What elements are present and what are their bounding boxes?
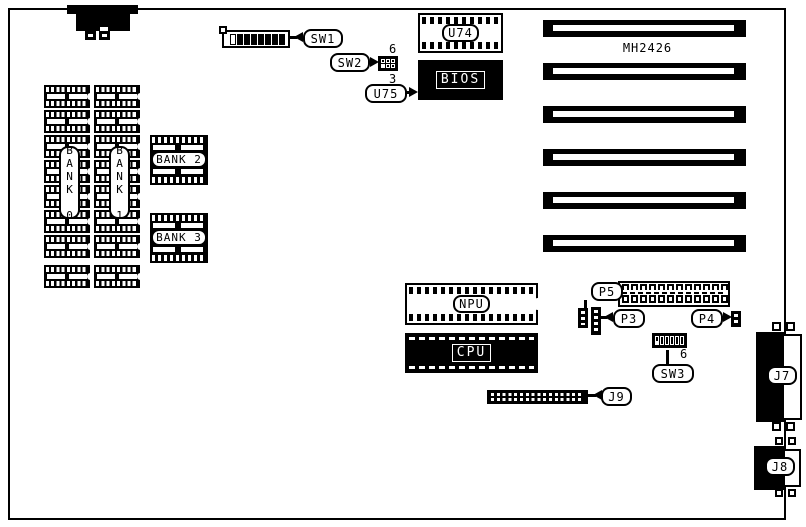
p5-pin <box>622 295 629 303</box>
bank3-label: BANK 3 <box>151 229 207 246</box>
bank2-pin-row <box>152 177 206 183</box>
bios-chip: BIOS <box>418 60 503 100</box>
p5-divider <box>622 292 726 294</box>
bank3-chip-bar <box>181 223 203 228</box>
sw1-label: SW1 <box>303 29 343 48</box>
sw3-switch-cell <box>655 336 659 345</box>
u75-label: U75 <box>365 84 407 103</box>
cpu-pin-row <box>409 366 534 369</box>
sw1-switch-cells <box>230 34 285 45</box>
p5-tab <box>676 284 683 290</box>
sw3-switch-cell <box>680 336 684 345</box>
p5-tab-row <box>622 284 728 290</box>
j7-screw-tab <box>772 422 781 431</box>
p3-label: P3 <box>613 309 645 328</box>
isa-slot <box>543 235 746 252</box>
sw3-switch-cell <box>665 336 669 345</box>
isa-slot <box>543 192 746 209</box>
p5-pin <box>676 295 683 303</box>
p5-header-connector <box>578 308 588 328</box>
memory-chip <box>44 110 90 133</box>
j9-pin-row <box>491 398 584 401</box>
bank2-chip-group: BANK 2 <box>150 135 208 185</box>
p5-pin <box>631 295 638 303</box>
bank3-pin-row <box>152 215 206 221</box>
bank0-label: BANK 0 <box>59 146 80 219</box>
p5-pin <box>658 295 665 303</box>
bank3-chip-bar <box>153 223 175 228</box>
memory-chip <box>44 235 90 258</box>
p5-pin-row <box>622 295 728 303</box>
npu-notch <box>532 298 539 310</box>
j9-connector <box>487 390 588 404</box>
sw3-switch-cell <box>675 336 679 345</box>
p5-pin <box>685 295 692 303</box>
j8-screw-tab <box>775 489 783 497</box>
p5-tab <box>721 284 728 290</box>
p5-tab <box>685 284 692 290</box>
p5-tab <box>631 284 638 290</box>
memory-chip <box>94 265 140 288</box>
memory-chip <box>94 110 140 133</box>
j8-screw-tab <box>788 489 796 497</box>
memory-chip <box>44 265 90 288</box>
sw3-leader-line <box>666 350 669 364</box>
u74-pin-row <box>422 17 499 24</box>
bank2-chip-bar <box>153 169 175 174</box>
npu-label: NPU <box>453 295 490 313</box>
p5-tab <box>667 284 674 290</box>
u74-label: U74 <box>442 24 479 42</box>
sw1-pointer-arrow-icon <box>294 32 303 42</box>
j9-label: J9 <box>601 387 632 406</box>
j9-pin-row <box>491 393 584 396</box>
cpu-label: CPU <box>452 344 491 362</box>
p4-pointer-arrow-icon <box>723 312 732 322</box>
board-model-label: MH2426 <box>605 41 690 55</box>
sw3-label: SW3 <box>652 364 694 383</box>
bank3-chip-bar <box>181 247 203 252</box>
p5-tab <box>640 284 647 290</box>
npu-chip: NPU <box>405 283 538 325</box>
p5-power-connector <box>618 281 730 307</box>
p5-pin <box>721 295 728 303</box>
p5-tab <box>703 284 710 290</box>
p5-pin <box>712 295 719 303</box>
sw3-switch-cell <box>670 336 674 345</box>
bios-label: BIOS <box>436 71 485 89</box>
p4-label: P4 <box>691 309 723 328</box>
p3-pointer-arrow-icon <box>604 312 613 322</box>
memory-chip <box>44 85 90 108</box>
p5-pin <box>694 295 701 303</box>
sw3-switch-cell <box>660 336 664 345</box>
bank2-pin-row <box>152 137 206 143</box>
sw2-pin6-label: 6 <box>389 43 396 55</box>
isa-slot <box>543 63 746 80</box>
bank1-label: BANK 1 <box>109 146 130 219</box>
p5-pin <box>667 295 674 303</box>
p5-tab <box>712 284 719 290</box>
cpu-chip: CPU <box>405 333 538 373</box>
p5-tab <box>649 284 656 290</box>
memory-chip <box>94 85 140 108</box>
cpu-pin-row <box>409 337 534 340</box>
j8-label: J8 <box>765 457 795 476</box>
j7-screw-tab <box>772 322 781 331</box>
isa-slot <box>543 149 746 166</box>
keyboard-connector <box>0 0 160 45</box>
p5-pin <box>703 295 710 303</box>
p3-connector <box>591 307 601 335</box>
sw1-pin1-marker <box>219 26 227 34</box>
keyboard-connector-leg <box>99 31 110 40</box>
u75-pointer-arrow-icon <box>409 87 418 97</box>
p5-leader-line <box>584 300 587 309</box>
sw3-pin6-label: 6 <box>680 348 687 360</box>
bank2-chip-bar <box>153 145 175 150</box>
keyboard-connector-leg <box>85 31 96 40</box>
bank2-chip-bar <box>181 145 203 150</box>
memory-chip <box>94 235 140 258</box>
p5-tab <box>622 284 629 290</box>
sw1-dip-switch <box>222 30 290 48</box>
bank2-chip-bar <box>181 169 203 174</box>
sw2-pointer-arrow-icon <box>370 57 379 67</box>
bank2-label: BANK 2 <box>151 151 207 168</box>
npu-pin-row <box>409 287 534 294</box>
isa-slot <box>543 20 746 37</box>
bank3-pin-row <box>152 255 206 261</box>
sw2-switch-block <box>378 56 398 71</box>
p5-pin <box>640 295 647 303</box>
p5-tab <box>694 284 701 290</box>
sw2-label: SW2 <box>330 53 370 72</box>
p5-label: P5 <box>591 282 623 301</box>
motherboard-layout-diagram: SW1 SW2 6 3 U74 BIOS U75 MH2426 BANK 0 B… <box>0 0 806 527</box>
j8-screw-tab <box>788 437 796 445</box>
j7-label: J7 <box>767 366 797 385</box>
isa-slot <box>543 106 746 123</box>
u74-chip: U74 <box>418 13 503 53</box>
u74-pin-row <box>422 42 499 49</box>
sw3-switch-block <box>652 333 687 348</box>
p5-pin <box>649 295 656 303</box>
bank3-chip-bar <box>153 247 175 252</box>
p4-connector <box>731 311 741 327</box>
bank3-chip-group: BANK 3 <box>150 213 208 263</box>
j7-screw-tab <box>786 322 795 331</box>
j8-screw-tab <box>775 437 783 445</box>
p5-tab <box>658 284 665 290</box>
j7-screw-tab <box>786 422 795 431</box>
npu-pin-row <box>409 314 534 321</box>
